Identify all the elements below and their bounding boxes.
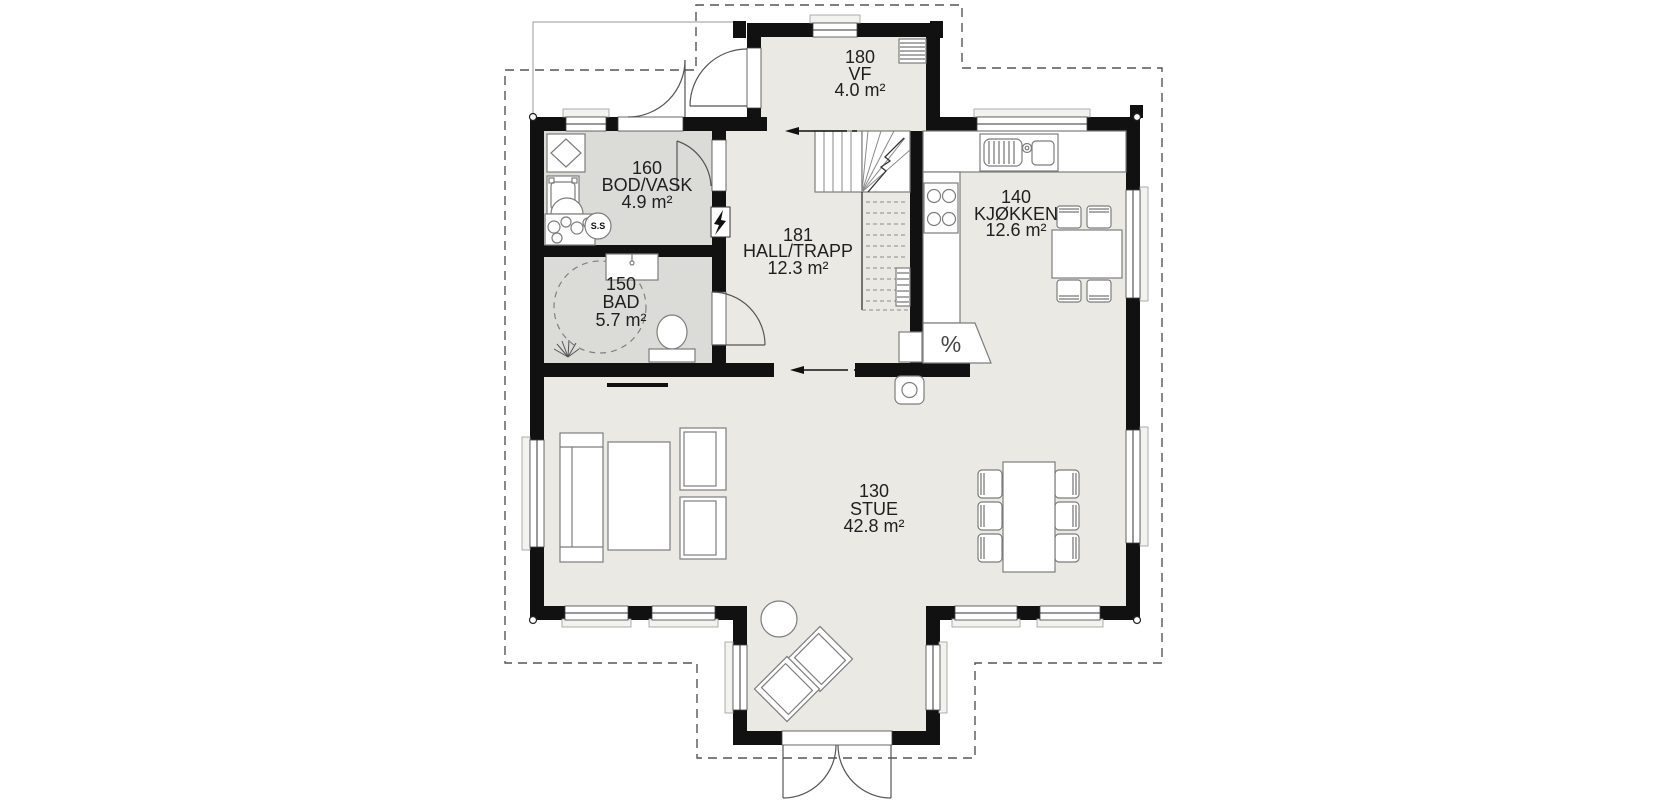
- svg-text:S.S: S.S: [591, 221, 606, 231]
- kitchen-top-window: [974, 109, 1090, 131]
- stove-icon: [924, 183, 958, 233]
- wood-stove-icon: [895, 376, 924, 404]
- stair-rail-hatch: [896, 268, 910, 306]
- bay-right-window: [926, 642, 947, 713]
- svg-text:130: 130: [859, 481, 889, 501]
- stue-left-window: [522, 437, 544, 550]
- floor-plan-page: S.S: [0, 0, 1670, 800]
- round-table-icon: [761, 601, 797, 637]
- svg-text:BAD: BAD: [602, 292, 639, 312]
- chair-icon: [1055, 470, 1079, 498]
- hall-cabinet: [899, 332, 922, 362]
- chair-icon: [978, 470, 1002, 498]
- chair-icon: [1087, 280, 1111, 302]
- stue-bottom-window: [562, 606, 631, 627]
- wardrobe-shelf-icon: [899, 39, 926, 63]
- terrace-double-door: [782, 731, 892, 798]
- bod-window: [563, 109, 609, 131]
- stue-bottom-window: [649, 606, 718, 627]
- floor-plan-drawing: S.S: [0, 0, 1670, 800]
- chair-icon: [1057, 206, 1081, 228]
- stue-bottom-window: [952, 606, 1020, 627]
- chair-icon: [1057, 280, 1081, 302]
- svg-text:12.6 m²: 12.6 m²: [985, 220, 1046, 240]
- corner-post: [930, 21, 943, 38]
- svg-text:%: %: [941, 331, 961, 357]
- coffee-table-icon: [608, 442, 670, 550]
- corner-post: [733, 21, 746, 38]
- svg-text:12.3 m²: 12.3 m²: [767, 258, 828, 278]
- chair-icon: [1087, 206, 1111, 228]
- dining-table-icon: [978, 462, 1079, 572]
- chair-icon: [978, 502, 1002, 530]
- tv-bench: [607, 383, 668, 387]
- entry-door: [690, 48, 761, 108]
- stue-bottom-window: [1037, 606, 1103, 627]
- fan-unit-icon: [547, 134, 585, 172]
- chair-icon: [1055, 534, 1079, 562]
- svg-text:5.7 m²: 5.7 m²: [595, 310, 646, 330]
- svg-text:42.8 m²: 42.8 m²: [843, 516, 904, 536]
- svg-text:4.9 m²: 4.9 m²: [621, 192, 672, 212]
- central-vacuum-icon: S.S: [585, 213, 611, 239]
- kitchen-sink-icon: [980, 134, 1058, 171]
- kitchen-table-icon: [1052, 206, 1122, 302]
- terrace-outline: [533, 22, 733, 115]
- svg-text:4.0 m²: 4.0 m²: [834, 80, 885, 100]
- armchair-icon: [680, 497, 726, 559]
- vf-window: [810, 15, 860, 37]
- armchair-icon: [680, 428, 726, 490]
- hall-stue-opening: [774, 363, 869, 377]
- bay-left-window: [725, 642, 747, 713]
- electrical-panel-icon: [711, 207, 730, 237]
- chair-icon: [1055, 502, 1079, 530]
- chair-icon: [978, 534, 1002, 562]
- sofa-icon: [560, 433, 603, 562]
- kitchen-right-window: [1126, 187, 1148, 301]
- stue-right-window: [1126, 427, 1148, 546]
- svg-text:150: 150: [606, 274, 636, 294]
